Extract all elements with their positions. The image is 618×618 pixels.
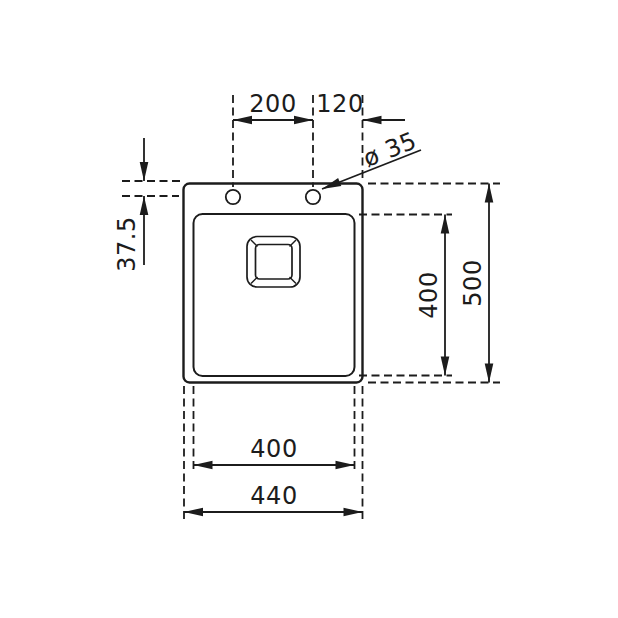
- arrow-120-right: [363, 116, 382, 125]
- arrow-37-5-up: [140, 196, 149, 215]
- label-bowl-width: 400: [250, 435, 297, 463]
- drain-corner-details: [251, 240, 296, 284]
- arrow-440-left: [184, 508, 203, 517]
- arrow-200-right: [294, 116, 313, 125]
- label-hole-to-edge: 120: [316, 90, 363, 118]
- arrow-440-right: [344, 508, 363, 517]
- arrow-400-right-top: [441, 215, 450, 234]
- sink-body: [184, 184, 363, 383]
- label-bowl-length: 400: [415, 271, 443, 318]
- drain: [247, 237, 300, 288]
- tap-hole-right: [306, 190, 320, 204]
- arrow-400-right-bottom: [441, 357, 450, 376]
- label-overall-length: 500: [459, 259, 487, 306]
- arrow-500-bottom: [485, 364, 494, 383]
- label-hole-spacing: 200: [249, 90, 296, 118]
- label-hole-diameter: ø 35: [359, 126, 420, 173]
- label-overall-width: 440: [250, 482, 297, 510]
- arrow-37-5-down: [140, 162, 149, 181]
- drain-inner-outline: [256, 245, 293, 280]
- dimension-labels: 200 120 ø 35 37.5 400 500 400 440: [113, 90, 487, 510]
- technical-drawing-canvas: 200 120 ø 35 37.5 400 500 400 440: [0, 0, 618, 618]
- extension-lines: [122, 95, 500, 520]
- arrow-500-top: [485, 184, 494, 203]
- tap-hole-left: [226, 190, 240, 204]
- sink-bowl-outline: [194, 214, 355, 376]
- sink-dimension-diagram: 200 120 ø 35 37.5 400 500 400 440: [0, 0, 618, 618]
- label-edge-to-hole-centerline: 37.5: [113, 216, 141, 271]
- arrow-400-bottom-left: [194, 461, 213, 470]
- arrow-400-bottom-right: [336, 461, 355, 470]
